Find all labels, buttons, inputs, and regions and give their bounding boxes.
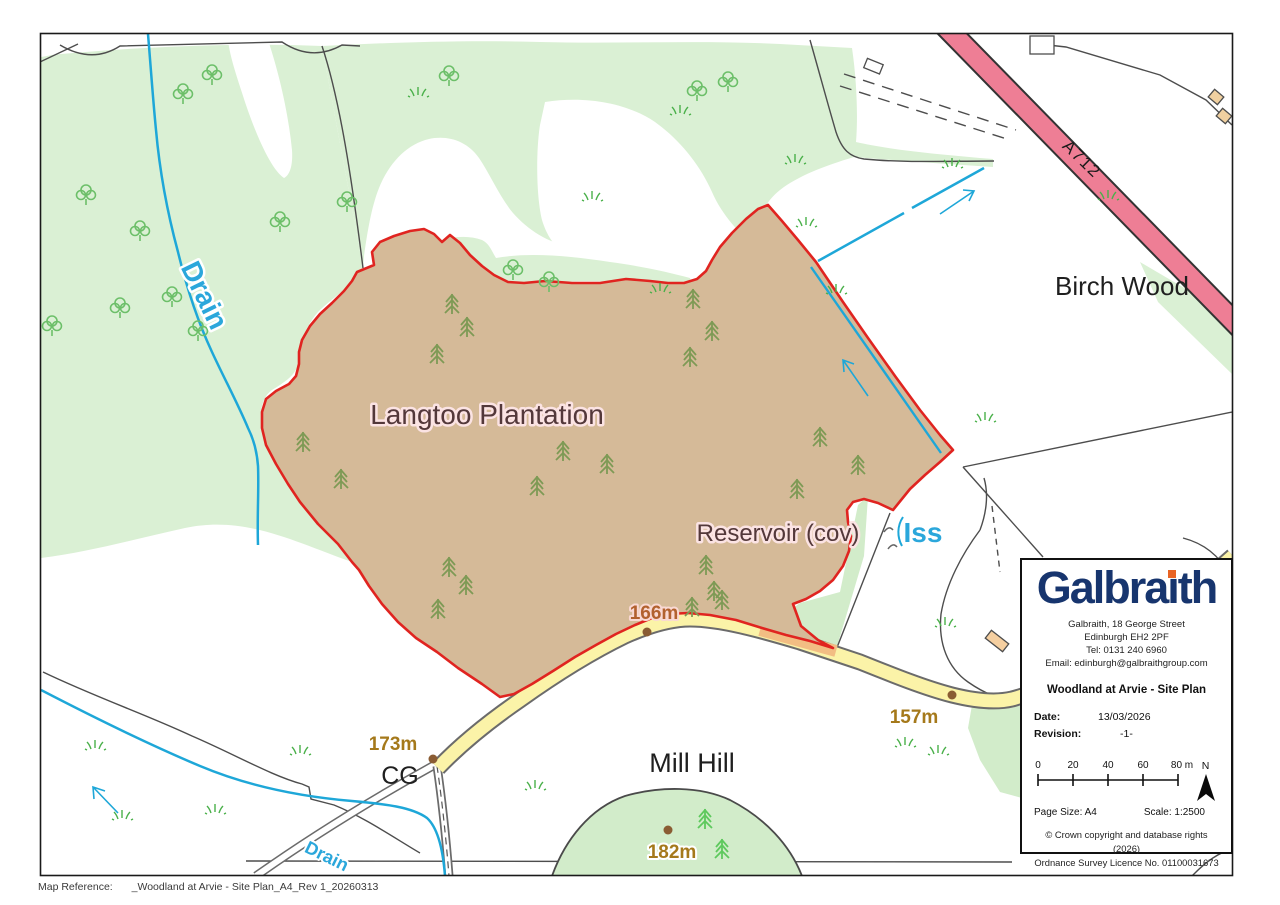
tick-label: 80 m	[1171, 760, 1193, 771]
label-height-182: 182m	[648, 842, 697, 863]
logo-text: Galbra	[1037, 562, 1168, 613]
date-row: Date: 13/03/2026	[1034, 711, 1219, 723]
label-iss: Iss	[904, 517, 943, 548]
address-line: Tel: 0131 240 6960	[1034, 644, 1219, 657]
revision-row: Revision: -1-	[1034, 728, 1219, 740]
label-height-173: 173m	[369, 734, 418, 755]
page-meta-row: Page Size: A4 Scale: 1:2500	[1034, 807, 1219, 818]
label-langtoo-plantation: Langtoo Plantation	[370, 399, 604, 430]
label-height-157: 157m	[890, 707, 939, 728]
north-label: N	[1202, 760, 1210, 772]
north-indicator: N	[1192, 760, 1219, 803]
north-arrow-icon	[1194, 773, 1218, 803]
address-line: Galbraith, 18 George Street	[1034, 618, 1219, 631]
tick-label: 20	[1067, 760, 1078, 771]
date-value: 13/03/2026	[1098, 711, 1151, 723]
map-reference-label: Map Reference:	[38, 881, 113, 893]
revision-label: Revision:	[1034, 728, 1098, 740]
label-mill-hill: Mill Hill	[649, 748, 734, 778]
copyright-note: © Crown copyright and database rights (2…	[1034, 828, 1219, 870]
tick-label: 40	[1102, 760, 1113, 771]
label-birch-wood: Birch Wood	[1055, 271, 1189, 301]
scalebar-bar	[1034, 773, 1186, 787]
address-line: Edinburgh EH2 2PF	[1034, 631, 1219, 644]
logo-letter-i: ı	[1167, 565, 1178, 611]
tick-label: 0	[1035, 760, 1041, 771]
label-reservoir: Reservoir (cov)	[697, 520, 860, 547]
date-label: Date:	[1034, 711, 1098, 723]
info-panel: Galbraıth Galbraith, 18 George Street Ed…	[1020, 558, 1233, 854]
scalebar: 0 20 40 60 80 m N	[1034, 760, 1219, 803]
tick-label: 60	[1137, 760, 1148, 771]
galbraith-logo: Galbraıth	[1034, 565, 1219, 613]
label-height-166: 166m	[630, 603, 679, 624]
scale-value: Scale: 1:2500	[1144, 807, 1205, 818]
office-address: Galbraith, 18 George Street Edinburgh EH…	[1034, 618, 1219, 670]
label-cg: CG	[381, 762, 419, 790]
address-line: Email: edinburgh@galbraithgroup.com	[1034, 657, 1219, 670]
page-size: Page Size: A4	[1034, 807, 1097, 818]
scalebar-tick-labels: 0 20 40 60 80 m	[1034, 760, 1186, 772]
map-reference-value: _Woodland at Arvie - Site Plan_A4_Rev 1_…	[132, 881, 379, 893]
map-reference: Map Reference: _Woodland at Arvie - Site…	[38, 881, 378, 893]
logo-orange-dot-icon	[1168, 570, 1176, 578]
revision-value: -1-	[1120, 728, 1133, 740]
site-plan-page: Langtoo Plantation Reservoir (cov) Iss D…	[0, 0, 1280, 905]
plan-title: Woodland at Arvie - Site Plan	[1034, 684, 1219, 696]
